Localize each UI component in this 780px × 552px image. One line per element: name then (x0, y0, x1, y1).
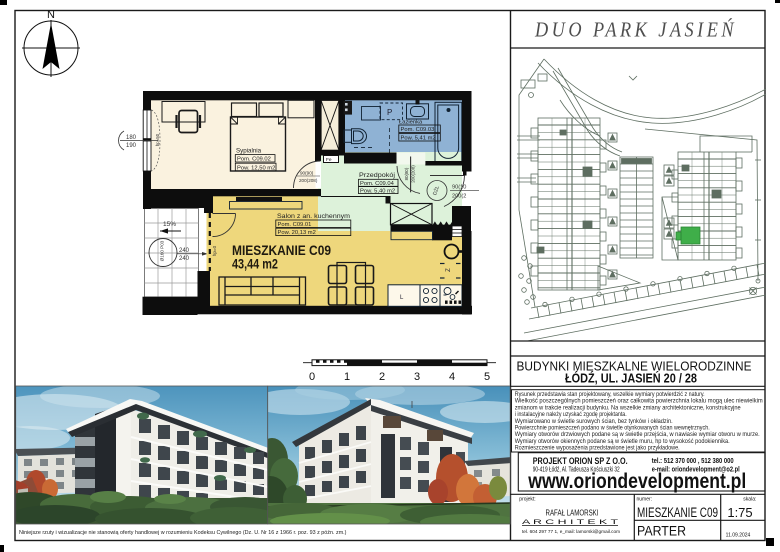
svg-text:3: 3 (414, 371, 420, 383)
svg-text:190: 190 (126, 143, 137, 149)
svg-text:hp=50: hp=50 (155, 133, 160, 146)
svg-text:www.oriondevelopment.pl: www.oriondevelopment.pl (527, 470, 746, 493)
svg-text:11.09.2024: 11.09.2024 (726, 533, 751, 539)
svg-text:200(208): 200(208) (411, 165, 416, 183)
svg-text:Pow. 5,41 m2: Pow. 5,41 m2 (401, 135, 436, 141)
svg-text:2: 2 (379, 371, 385, 383)
svg-text:tel. 604 297 77 1, e_mail: tel. 604 297 77 1, e_mail: lamorski@gmai… (522, 529, 620, 535)
svg-text:Pow. 20,13 m2: Pow. 20,13 m2 (278, 230, 316, 236)
svg-text:skala:: skala: (743, 496, 756, 502)
svg-text:1:75: 1:75 (727, 505, 752, 520)
svg-text:Pom. C09.04: Pom. C09.04 (360, 181, 395, 187)
svg-text:projekt:: projekt: (519, 496, 535, 502)
svg-text:Z: Z (446, 268, 452, 272)
svg-text:Salon z an. kuchennym: Salon z an. kuchennym (277, 214, 350, 220)
svg-text:15%: 15% (163, 221, 176, 228)
svg-text:200(208): 200(208) (299, 178, 318, 183)
svg-text:A R C H I T E K T: A R C H I T E K T (522, 519, 618, 526)
svg-text:Rozmieszczenie wyposażenia prz: Rozmieszczenie wyposażenia przedstawione… (515, 445, 680, 452)
svg-text:Fe: Fe (326, 157, 332, 163)
svg-text:RAFAŁ LAMORSKI: RAFAŁ LAMORSKI (546, 508, 599, 517)
svg-text:numer:: numer: (637, 496, 653, 502)
svg-text:Niniejsze rzuty i wizualizacje: Niniejsze rzuty i wizualizacje nie stano… (19, 530, 347, 536)
svg-text:1: 1 (344, 371, 350, 383)
svg-text:Pom. C09.01: Pom. C09.01 (278, 222, 312, 228)
svg-text:Łazienka: Łazienka (399, 120, 423, 126)
svg-text:tel.: 512 370 000 , 512 380 00: tel.: 512 370 000 , 512 380 000 (652, 458, 734, 465)
svg-text:MIESZKANIE C09: MIESZKANIE C09 (637, 505, 718, 520)
svg-text:43,44 m2: 43,44 m2 (232, 256, 278, 272)
svg-text:90(10: 90(10 (452, 185, 466, 191)
svg-text:DUO PARK JASIEŃ: DUO PARK JASIEŃ (534, 18, 737, 42)
svg-text:N: N (47, 9, 55, 21)
svg-text:200(2: 200(2 (452, 194, 466, 200)
svg-text:P: P (387, 108, 392, 117)
svg-text:Pow. 5,40 m2: Pow. 5,40 m2 (360, 188, 395, 194)
svg-text:PROJEKT ORION SP Z O.O.: PROJEKT ORION SP Z O.O. (533, 456, 628, 466)
svg-text:Ø160 P03: Ø160 P03 (160, 240, 165, 261)
svg-text:Sypialnia: Sypialnia (236, 148, 262, 155)
svg-text:Pow. 12,50 m2: Pow. 12,50 m2 (237, 165, 275, 171)
svg-text:0: 0 (309, 371, 315, 383)
svg-text:Przedpokój: Przedpokój (359, 173, 395, 179)
svg-text:5: 5 (484, 371, 490, 383)
svg-text:180: 180 (126, 135, 137, 141)
svg-text:240: 240 (179, 248, 190, 254)
svg-text:hp=0: hp=0 (212, 245, 217, 256)
svg-text:Pom. C09.03: Pom. C09.03 (401, 127, 435, 133)
svg-text:ŁÓDŹ, UL. JASIEŃ 20 / 28: ŁÓDŹ, UL. JASIEŃ 20 / 28 (565, 371, 697, 386)
svg-text:PARTER: PARTER (637, 522, 686, 538)
svg-text:90(90): 90(90) (300, 171, 314, 176)
svg-text:4: 4 (449, 371, 455, 383)
svg-text:Pom. C09.02: Pom. C09.02 (237, 157, 271, 163)
svg-text:80(80): 80(80) (404, 167, 409, 180)
svg-text:240: 240 (179, 256, 190, 262)
